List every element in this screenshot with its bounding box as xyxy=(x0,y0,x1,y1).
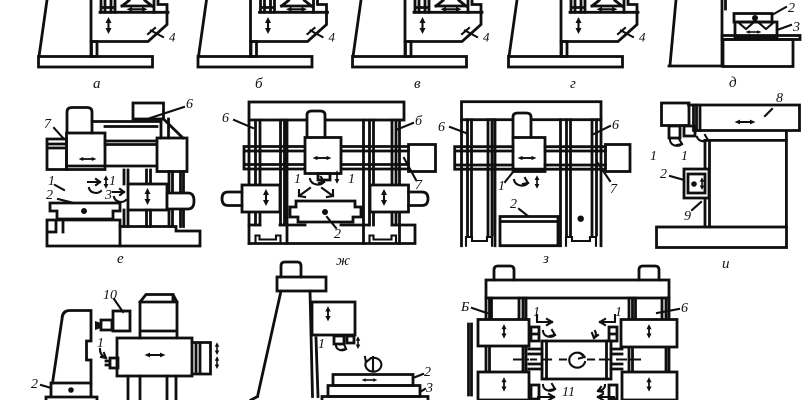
svg-text:11: 11 xyxy=(562,385,575,400)
svg-text:2: 2 xyxy=(424,365,431,380)
svg-text:и: и xyxy=(722,256,730,272)
svg-text:2: 2 xyxy=(788,1,795,16)
svg-text:3: 3 xyxy=(792,20,800,35)
svg-text:1: 1 xyxy=(318,337,325,352)
svg-text:6: 6 xyxy=(612,118,619,133)
svg-text:6: 6 xyxy=(186,97,193,112)
svg-text:9: 9 xyxy=(684,209,691,224)
svg-text:1: 1 xyxy=(109,174,116,189)
svg-text:7: 7 xyxy=(610,182,618,197)
svg-text:е: е xyxy=(117,251,124,267)
svg-text:б: б xyxy=(255,76,263,92)
svg-text:1: 1 xyxy=(650,149,657,164)
svg-text:д: д xyxy=(729,75,737,91)
svg-text:2: 2 xyxy=(46,188,53,203)
svg-text:1: 1 xyxy=(48,174,55,189)
svg-text:3: 3 xyxy=(425,381,433,396)
svg-text:1: 1 xyxy=(498,179,505,194)
svg-text:в: в xyxy=(414,76,421,92)
svg-text:ж: ж xyxy=(336,253,350,269)
svg-text:7: 7 xyxy=(44,117,52,132)
svg-text:8: 8 xyxy=(776,91,783,106)
svg-text:б: б xyxy=(415,114,423,129)
svg-text:з: з xyxy=(542,251,549,267)
svg-text:2: 2 xyxy=(31,377,38,392)
svg-text:1: 1 xyxy=(294,172,301,187)
svg-text:3: 3 xyxy=(104,188,112,203)
svg-text:6: 6 xyxy=(222,111,229,126)
svg-text:6: 6 xyxy=(681,301,688,316)
svg-text:2: 2 xyxy=(660,167,667,182)
svg-text:Б: Б xyxy=(460,300,469,315)
svg-text:1: 1 xyxy=(348,172,355,187)
svg-text:1: 1 xyxy=(681,149,688,164)
svg-text:6: 6 xyxy=(438,120,445,135)
svg-text:г: г xyxy=(570,76,576,92)
svg-text:2: 2 xyxy=(334,227,341,242)
svg-text:а: а xyxy=(93,76,101,92)
svg-text:2: 2 xyxy=(510,197,517,212)
